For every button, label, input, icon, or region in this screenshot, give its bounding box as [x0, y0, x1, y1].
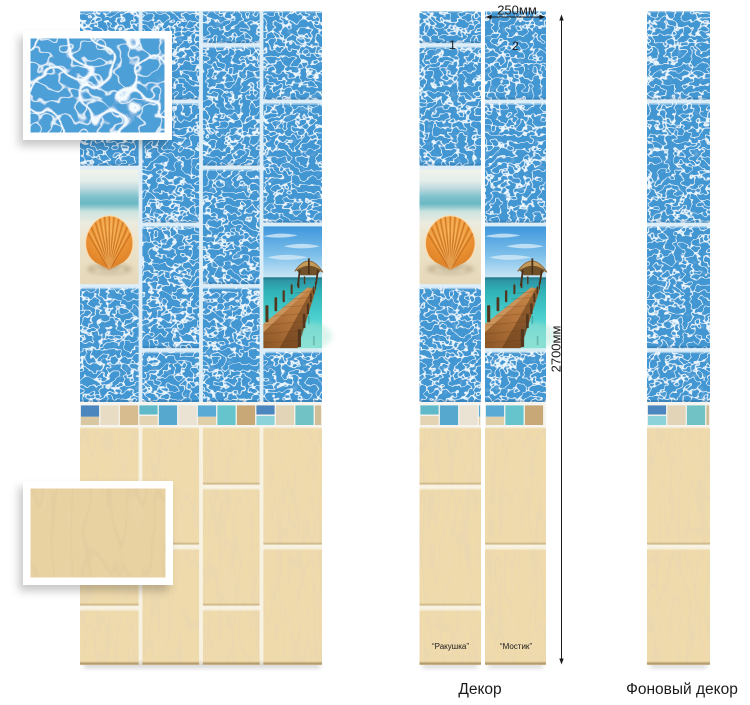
- svg-text:Декор: Декор: [458, 681, 501, 698]
- svg-text:1: 1: [449, 38, 456, 52]
- svg-text:2700мм: 2700мм: [549, 326, 564, 373]
- svg-text:2: 2: [512, 39, 519, 53]
- svg-text:250мм: 250мм: [497, 3, 537, 18]
- svg-text:“Ракушка”: “Ракушка”: [432, 642, 469, 651]
- svg-text:Фоновый декор: Фоновый декор: [626, 681, 738, 698]
- svg-text:“Мостик”: “Мостик”: [500, 642, 533, 651]
